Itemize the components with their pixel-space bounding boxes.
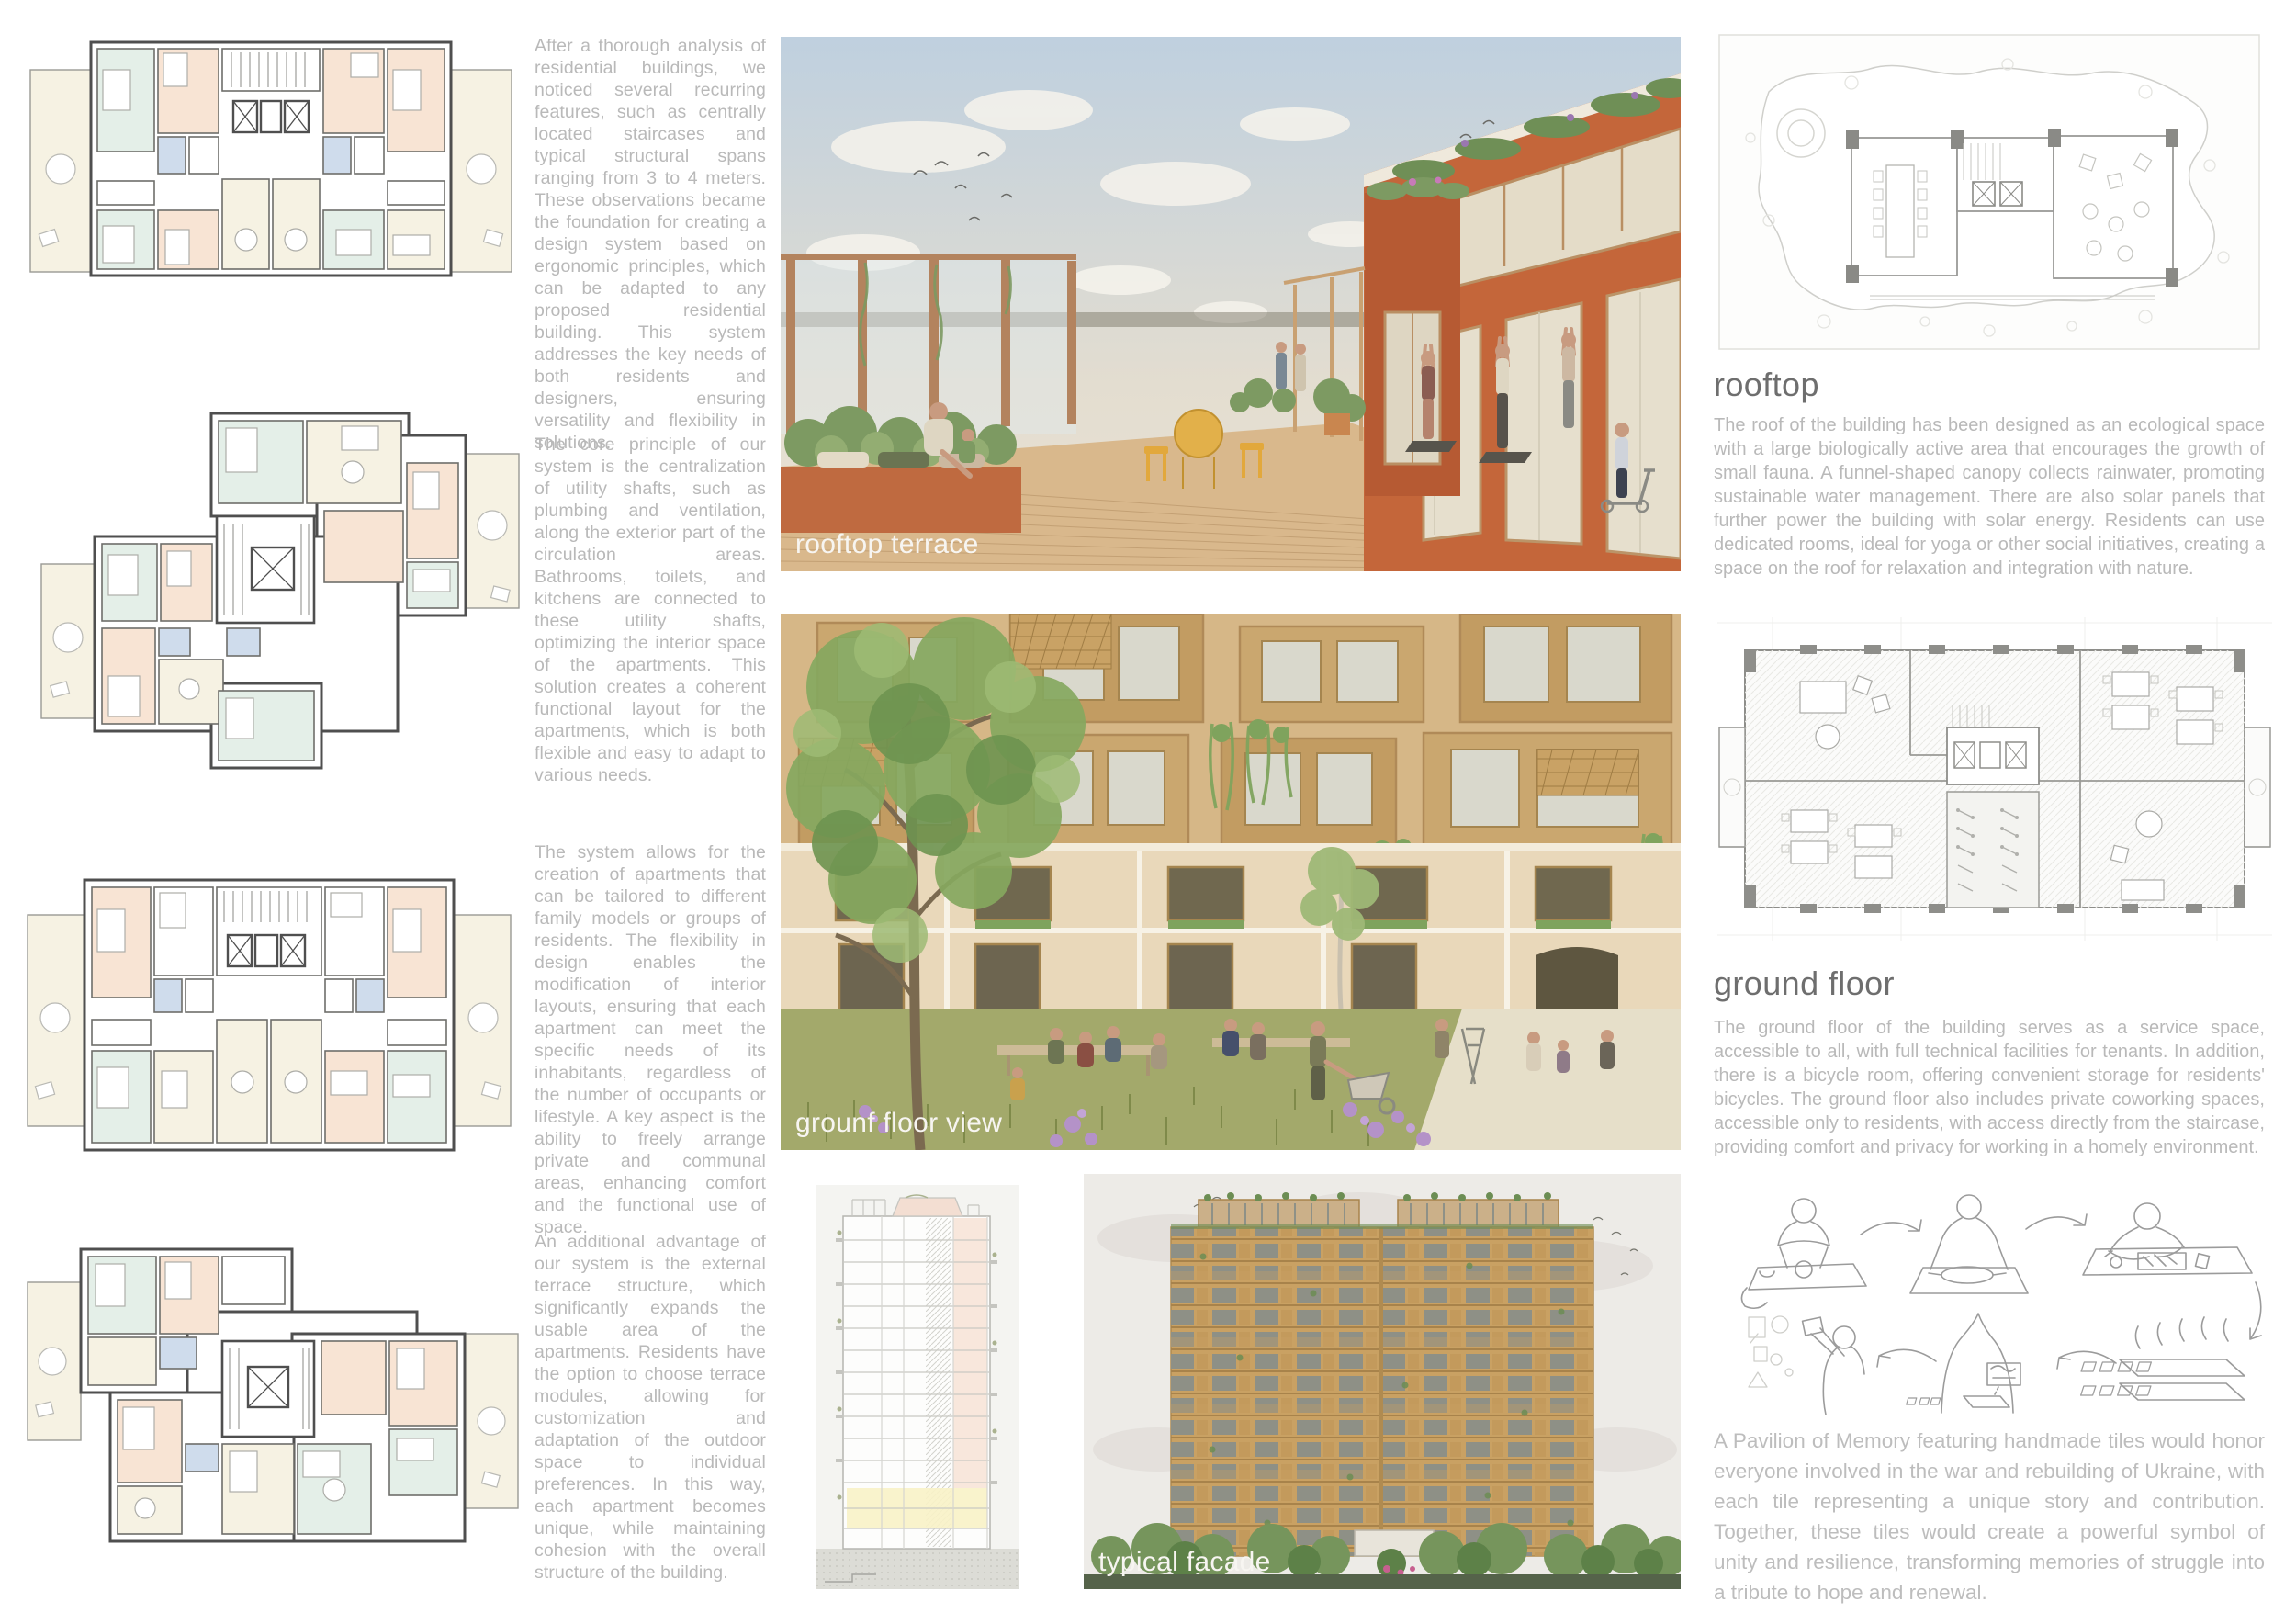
core-principle-paragraph: The core principle of our system is the … <box>535 434 766 786</box>
intro-paragraph: After a thorough analysis of residential… <box>535 35 766 454</box>
rooftop-terrace-label: rooftop terrace <box>795 529 979 560</box>
typical-facade-render: typical facade <box>1084 1174 1681 1589</box>
ground-floor-paragraph: The ground floor of the building serves … <box>1714 1016 2265 1159</box>
floor-plan-pinwheel-1 <box>37 408 523 773</box>
rooftop-plan-drawing <box>1714 28 2265 355</box>
floor-plan-typical-wide-2 <box>24 871 514 1159</box>
tile-making-process-sketch <box>1723 1179 2274 1416</box>
rooftop-paragraph: The roof of the building has been design… <box>1714 413 2265 581</box>
pavilion-of-memory-paragraph: A Pavilion of Memory featuring handmade … <box>1714 1426 2265 1607</box>
presentation-board: After a thorough analysis of residential… <box>0 0 2296 1624</box>
ground-floor-heading: ground floor <box>1714 964 1895 1003</box>
ground-floor-view-render: grounf floor view <box>781 614 1681 1150</box>
rooftop-heading: rooftop <box>1714 366 1819 404</box>
ground-floor-view-label: grounf floor view <box>795 1108 1002 1139</box>
building-section-drawing <box>816 1185 1019 1589</box>
rooftop-terrace-render: rooftop terrace <box>781 37 1681 571</box>
terrace-paragraph: An additional advantage of our system is… <box>535 1231 766 1584</box>
ground-floor-plan-drawing <box>1717 617 2272 941</box>
flexibility-paragraph: The system allows for the creation of ap… <box>535 841 766 1238</box>
floor-plan-typical-wide-1 <box>28 33 514 285</box>
floor-plan-pinwheel-2 <box>22 1224 523 1573</box>
typical-facade-label: typical facade <box>1098 1547 1271 1578</box>
